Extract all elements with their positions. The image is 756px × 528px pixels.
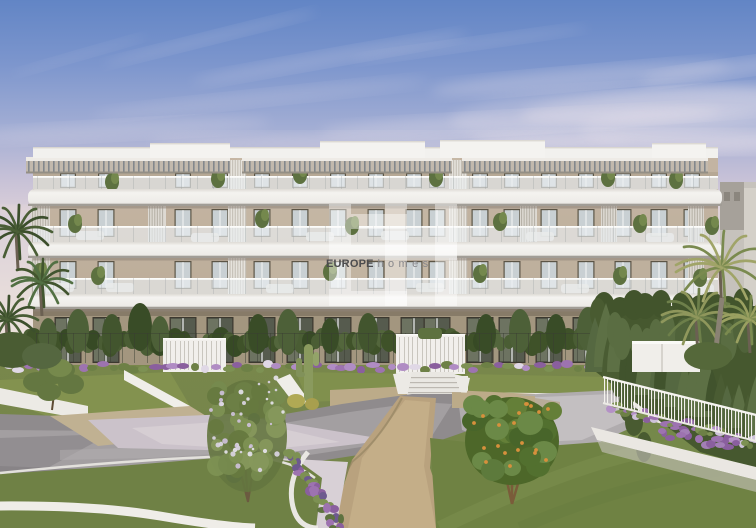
svg-text:homes: homes [378, 258, 433, 270]
svg-text:EUROPE: EUROPE [326, 258, 374, 270]
